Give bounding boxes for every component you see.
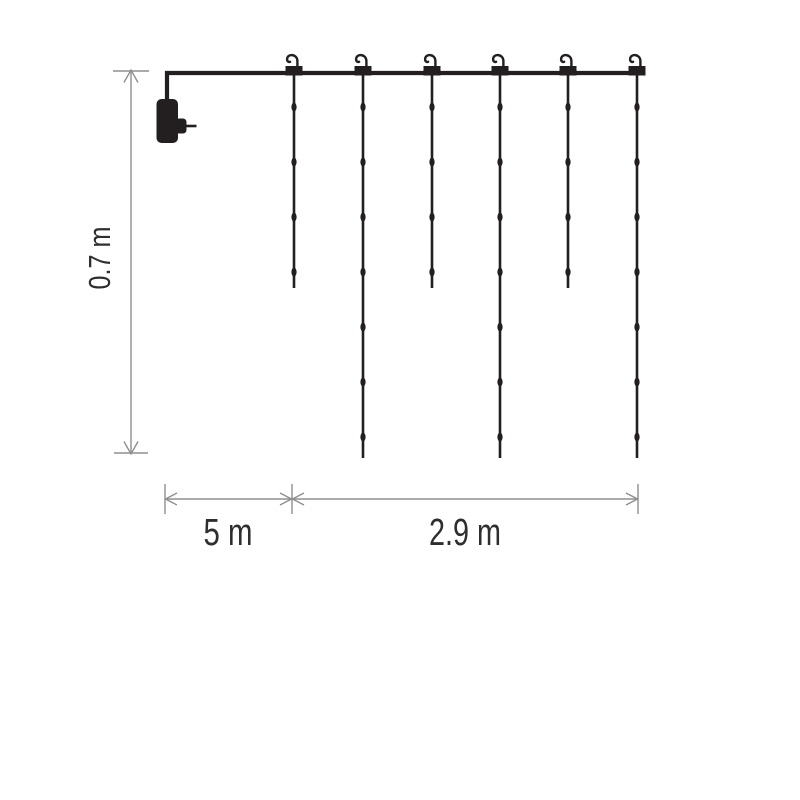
led-bulb bbox=[291, 212, 296, 223]
light-strand bbox=[355, 55, 372, 458]
light-strand bbox=[560, 55, 577, 288]
led-bulb bbox=[634, 157, 639, 168]
led-bulb bbox=[291, 102, 296, 113]
led-bulb bbox=[565, 267, 570, 278]
hanging-hook-icon bbox=[356, 55, 366, 66]
power-plug-icon bbox=[157, 99, 197, 143]
led-bulb bbox=[565, 212, 570, 223]
led-bulb bbox=[497, 102, 502, 113]
hanging-hook-icon bbox=[287, 55, 297, 66]
curtain-drawing bbox=[157, 55, 646, 458]
led-bulb bbox=[497, 212, 502, 223]
led-bulb bbox=[429, 267, 434, 278]
hook-clamp bbox=[355, 66, 372, 76]
light-strand bbox=[629, 55, 646, 458]
led-bulb bbox=[360, 212, 365, 223]
led-bulb bbox=[429, 157, 434, 168]
led-bulb bbox=[497, 432, 502, 443]
led-bulb bbox=[497, 267, 502, 278]
led-bulb bbox=[360, 377, 365, 388]
led-bulb bbox=[360, 102, 365, 113]
led-bulb bbox=[497, 377, 502, 388]
plug-nub bbox=[176, 119, 187, 134]
led-bulb bbox=[634, 102, 639, 113]
hanging-hook-icon bbox=[425, 55, 435, 66]
led-bulb bbox=[497, 157, 502, 168]
height-dimension-label: 0.7 m bbox=[82, 227, 117, 290]
plug-body bbox=[157, 99, 179, 143]
hanging-hook-icon bbox=[630, 55, 640, 66]
diagram-canvas: 0.7 m 5 m 2.9 m bbox=[0, 0, 800, 800]
led-bulb bbox=[291, 267, 296, 278]
lead-dimension-label: 5 m bbox=[204, 512, 253, 554]
light-curtain-diagram: 0.7 m 5 m 2.9 m bbox=[0, 0, 800, 800]
hook-clamp bbox=[629, 66, 646, 76]
led-bulb bbox=[565, 157, 570, 168]
led-bulb bbox=[429, 102, 434, 113]
light-strand bbox=[286, 55, 303, 288]
led-bulb bbox=[634, 377, 639, 388]
led-bulb bbox=[360, 157, 365, 168]
led-bulb bbox=[291, 157, 296, 168]
light-strand bbox=[492, 55, 509, 458]
led-bulb bbox=[429, 212, 434, 223]
led-bulb bbox=[634, 322, 639, 333]
hook-clamp bbox=[560, 66, 577, 76]
hook-clamp bbox=[424, 66, 441, 76]
hook-clamp bbox=[492, 66, 509, 76]
led-bulb bbox=[634, 267, 639, 278]
hanging-hook-icon bbox=[561, 55, 571, 66]
led-bulb bbox=[634, 212, 639, 223]
led-bulb bbox=[565, 102, 570, 113]
led-bulb bbox=[497, 322, 502, 333]
hook-clamp bbox=[286, 66, 303, 76]
led-bulb bbox=[360, 267, 365, 278]
supply-wire bbox=[167, 73, 646, 101]
hanging-hook-icon bbox=[493, 55, 503, 66]
led-bulb bbox=[634, 432, 639, 443]
led-bulb bbox=[360, 322, 365, 333]
dimension-lines bbox=[113, 70, 638, 514]
width-dimension-label: 2.9 m bbox=[429, 512, 501, 554]
led-bulb bbox=[360, 432, 365, 443]
light-strand bbox=[424, 55, 441, 288]
